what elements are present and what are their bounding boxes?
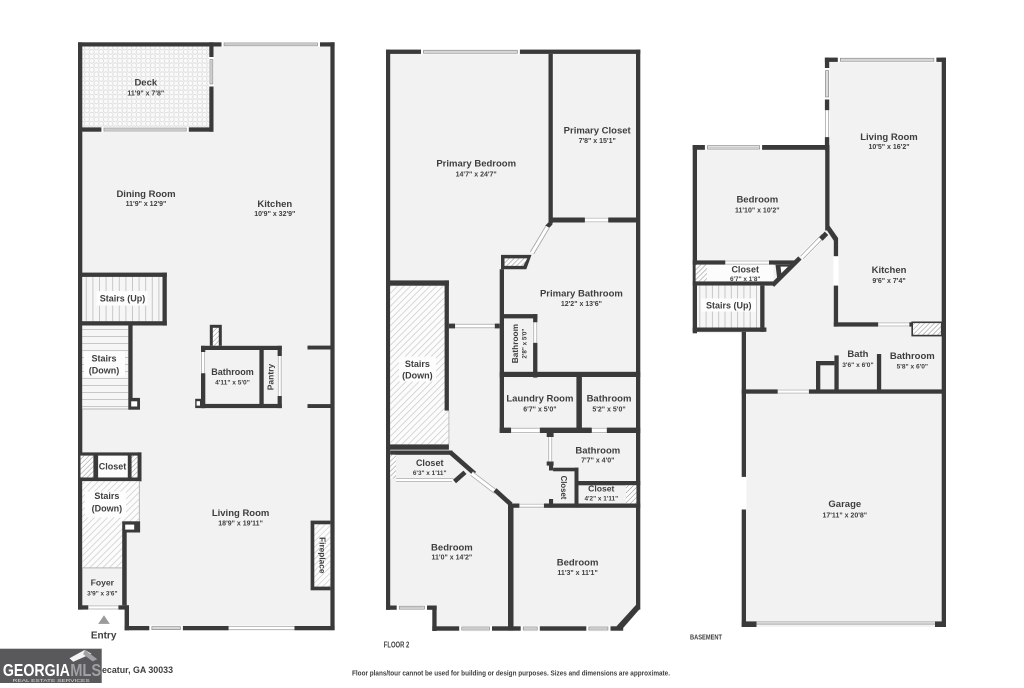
svg-text:4'11" x 5'0": 4'11" x 5'0" (215, 380, 250, 387)
svg-text:(Down): (Down) (402, 370, 433, 380)
svg-text:REAL ESTATE SERVICES: REAL ESTATE SERVICES (13, 678, 90, 683)
svg-text:ecatur, GA 30033: ecatur, GA 30033 (102, 665, 173, 676)
svg-text:Primary Bedroom: Primary Bedroom (436, 158, 516, 169)
svg-text:Garage: Garage (828, 499, 861, 510)
svg-text:Fireplace: Fireplace (318, 537, 328, 574)
svg-text:(Down): (Down) (89, 366, 120, 376)
svg-text:11'3" x 11'1": 11'3" x 11'1" (557, 570, 597, 577)
svg-text:Stairs: Stairs (94, 491, 119, 501)
svg-text:18'9" x 19'11": 18'9" x 19'11" (218, 521, 263, 528)
svg-text:Kitchen: Kitchen (872, 265, 907, 276)
svg-text:5'2" x 5'0": 5'2" x 5'0" (592, 407, 625, 414)
svg-text:Foyer: Foyer (91, 578, 115, 588)
svg-text:FLOOR 2: FLOOR 2 (384, 641, 410, 650)
svg-text:10'5" x 16'2": 10'5" x 16'2" (868, 144, 909, 151)
svg-text:3'6" x 6'0": 3'6" x 6'0" (842, 362, 873, 369)
svg-text:Bathroom: Bathroom (575, 446, 620, 457)
svg-text:Bathroom: Bathroom (890, 351, 935, 362)
svg-text:6'7" x 5'0": 6'7" x 5'0" (523, 407, 556, 414)
svg-text:11'10" x 10'2": 11'10" x 10'2" (735, 208, 780, 215)
svg-text:Entry: Entry (91, 631, 117, 642)
svg-text:Closet: Closet (588, 484, 614, 494)
svg-text:Bedroom: Bedroom (557, 557, 599, 568)
svg-text:11'0" x 14'2": 11'0" x 14'2" (432, 554, 473, 561)
svg-text:Living Room: Living Room (212, 508, 270, 519)
svg-text:MLS: MLS (70, 660, 101, 680)
svg-text:11'9" x 12'9": 11'9" x 12'9" (126, 201, 167, 208)
svg-text:14'7" x 24'7": 14'7" x 24'7" (456, 171, 497, 178)
svg-text:Stairs: Stairs (91, 354, 116, 364)
svg-text:Dining Room: Dining Room (116, 189, 175, 200)
svg-text:Stairs (Up): Stairs (Up) (706, 300, 752, 310)
svg-text:6'3" x 1'11": 6'3" x 1'11" (413, 470, 447, 477)
svg-text:9'6" x 7'4": 9'6" x 7'4" (872, 278, 905, 285)
svg-text:Closet: Closet (99, 462, 127, 472)
svg-text:Deck: Deck (134, 78, 157, 89)
svg-text:Bathroom: Bathroom (510, 324, 520, 363)
svg-text:17'11" x 20'8": 17'11" x 20'8" (822, 513, 867, 520)
svg-text:3'9" x 3'6": 3'9" x 3'6" (87, 591, 117, 598)
svg-text:5'8" x 6'0": 5'8" x 6'0" (897, 364, 928, 371)
svg-text:Floor plans/tour cannot be use: Floor plans/tour cannot be used for buil… (352, 671, 670, 678)
svg-text:Stairs: Stairs (405, 359, 430, 369)
svg-text:10'9" x 32'9": 10'9" x 32'9" (254, 211, 295, 218)
svg-text:Kitchen: Kitchen (257, 199, 292, 210)
svg-text:Primary Bathroom: Primary Bathroom (540, 288, 623, 299)
svg-text:2'8" x 5'0": 2'8" x 5'0" (522, 329, 529, 359)
svg-text:Laundry Room: Laundry Room (506, 394, 573, 405)
svg-text:Closet: Closet (731, 265, 759, 275)
svg-text:Bedroom: Bedroom (431, 542, 473, 553)
svg-text:GEORGIA: GEORGIA (3, 660, 70, 680)
svg-text:6'7" x 1'8": 6'7" x 1'8" (730, 276, 760, 283)
svg-text:11'9" x 7'8": 11'9" x 7'8" (127, 91, 164, 98)
svg-text:4'2" x 1'11": 4'2" x 1'11" (584, 496, 618, 503)
svg-text:7'8" x 15'1": 7'8" x 15'1" (579, 138, 616, 145)
svg-text:(Down): (Down) (92, 504, 123, 514)
svg-text:Bedroom: Bedroom (736, 194, 778, 205)
svg-text:Primary Closet: Primary Closet (564, 125, 632, 136)
svg-text:Bathroom: Bathroom (211, 367, 254, 377)
svg-text:Stairs (Up): Stairs (Up) (100, 294, 146, 304)
svg-text:7'7" x 4'0": 7'7" x 4'0" (581, 458, 614, 465)
svg-text:Closet: Closet (416, 458, 444, 468)
svg-text:Living Room: Living Room (860, 132, 918, 143)
svg-text:Bathroom: Bathroom (587, 394, 632, 405)
svg-text:Bath: Bath (847, 349, 868, 360)
svg-text:Pantry: Pantry (266, 364, 276, 391)
svg-text:BASEMENT: BASEMENT (690, 635, 723, 642)
svg-text:Closet: Closet (559, 476, 568, 500)
svg-text:12'2" x 13'6": 12'2" x 13'6" (561, 301, 602, 308)
